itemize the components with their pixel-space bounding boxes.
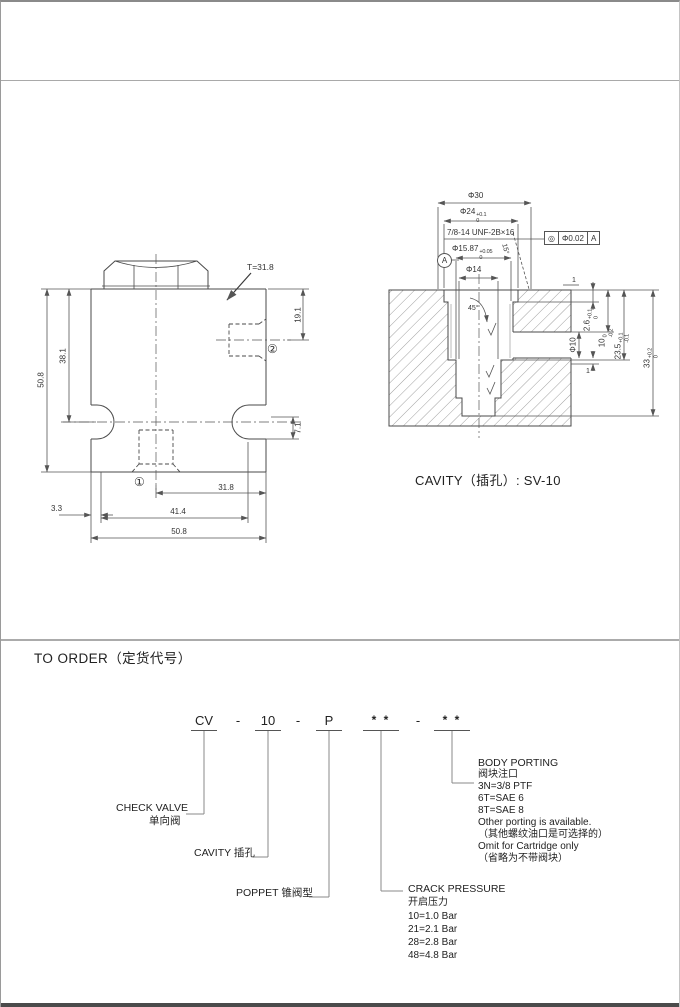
gdt-feature-control-frame: ◎ Φ0.02 A	[544, 231, 600, 245]
body-porting-line: （省略为不带阀块）	[478, 853, 568, 865]
dim-41-4: 41.4	[163, 507, 193, 516]
thread-callout: 7/8-14 UNF-2B×16	[447, 228, 514, 237]
tol-lower: 0	[479, 256, 492, 262]
drawing-line-art	[1, 2, 680, 1007]
check-valve-label-en: CHECK VALVE	[116, 802, 188, 814]
body-porting-title: BODY PORTING	[478, 757, 558, 769]
dim-phi30: Φ30	[468, 191, 483, 200]
header-divider	[1, 80, 680, 81]
dim-19-1: 19.1	[294, 307, 303, 323]
dim-33-value: 33	[643, 359, 652, 368]
section-divider	[1, 639, 680, 641]
crack-pressure-option: 10=1.0 Bar	[408, 911, 457, 923]
order-code-separator: -	[232, 713, 244, 731]
tol-lower: 0	[654, 348, 660, 358]
dim-23-5-value: 23.5	[614, 344, 623, 360]
dim-23-5: 23.5+0.1-0.1	[614, 333, 631, 360]
order-code-poppet: P	[316, 713, 342, 731]
dim-phi24: Φ24+0.10	[460, 207, 486, 224]
cavity-code-label: CAVITY 插孔	[194, 847, 255, 859]
dim-50-8-bottom: 50.8	[164, 527, 194, 536]
dim-phi24-tolerance: +0.10	[476, 213, 486, 224]
thread-depth-label: T=31.8	[247, 263, 274, 272]
dim-2-6-tolerance: +0.10	[589, 309, 600, 319]
order-code-separator: -	[292, 713, 304, 731]
dim-phi15-87-tolerance: +0.050	[479, 250, 492, 261]
order-section-title: TO ORDER（定货代号）	[34, 647, 192, 667]
dim-23-5-tolerance: +0.1-0.1	[620, 333, 631, 343]
crack-pressure-option: 28=2.8 Bar	[408, 937, 457, 949]
order-code-separator: -	[412, 713, 424, 731]
crack-pressure-title: CRACK PRESSURE	[408, 883, 505, 895]
crack-pressure-option: 21=2.1 Bar	[408, 924, 457, 936]
tol-lower: 0	[594, 309, 600, 319]
gdt-tolerance: Φ0.02	[558, 232, 587, 244]
angle-15-label: 15°	[499, 243, 510, 255]
tol-lower: 0	[476, 219, 486, 225]
check-valve-label-cn: 单向阀	[149, 815, 181, 827]
dim-31-8: 31.8	[211, 483, 241, 492]
order-code-size: 10	[255, 713, 281, 731]
body-porting-line: Other porting is available.	[478, 817, 591, 829]
body-porting-cn: 阀块注口	[478, 769, 518, 781]
dim-phi24-value: Φ24	[460, 207, 475, 216]
order-code-porting-stars: * *	[434, 713, 470, 731]
body-porting-line: 6T=SAE 6	[478, 793, 524, 805]
dim-33: 33+0.20	[643, 348, 660, 368]
crack-pressure-option: 48=4.8 Bar	[408, 950, 457, 962]
dim-phi15-87: Φ15.87+0.050	[452, 244, 492, 261]
datum-a-balloon: A	[437, 253, 452, 268]
cavity-caption: CAVITY（插孔）: SV-10	[415, 470, 561, 489]
dim-7-1: 7.1	[294, 422, 303, 433]
body-porting-line: 3N=3/8 PTF	[478, 781, 532, 793]
dim-38-1: 38.1	[59, 348, 68, 364]
dim-1-top: 1	[572, 276, 576, 285]
page-bottom-bar	[1, 1003, 680, 1007]
dim-10-value: 10	[598, 338, 607, 347]
dim-50-8-vertical: 50.8	[37, 372, 46, 388]
tol-lower: -0.1	[625, 333, 631, 343]
order-code-crack-pressure-stars: * *	[363, 713, 399, 731]
dim-phi14: Φ14	[466, 265, 481, 274]
dim-phi15-87-value: Φ15.87	[452, 244, 478, 253]
port-2-marker: ②	[267, 342, 278, 356]
dim-10: 100-0.2	[598, 329, 615, 348]
body-porting-line: 8T=SAE 8	[478, 805, 524, 817]
dim-3-3: 3.3	[51, 504, 62, 513]
angle-45-label: 45°	[468, 304, 479, 313]
crack-pressure-cn: 开启压力	[408, 897, 448, 909]
concentricity-icon: ◎	[545, 232, 558, 244]
body-porting-line: （其他螺纹油口是可选择的）	[478, 829, 608, 841]
order-code-prefix: CV	[191, 713, 217, 731]
dim-33-tolerance: +0.20	[649, 348, 660, 358]
gdt-datum-ref: A	[587, 232, 599, 244]
body-porting-line: Omit for Cartridge only	[478, 841, 579, 853]
port-1-marker: ①	[134, 475, 145, 489]
dim-1-bottom: 1	[586, 367, 590, 376]
dim-phi10: Φ10	[569, 337, 578, 352]
datasheet-page: T=31.8 19.1 38.1 50.8 7.1 ② ① 31.8 3.3 4…	[0, 0, 680, 1007]
dim-2-6-value: 2.6	[583, 320, 592, 331]
poppet-code-label: POPPET 锥阀型	[236, 887, 313, 899]
